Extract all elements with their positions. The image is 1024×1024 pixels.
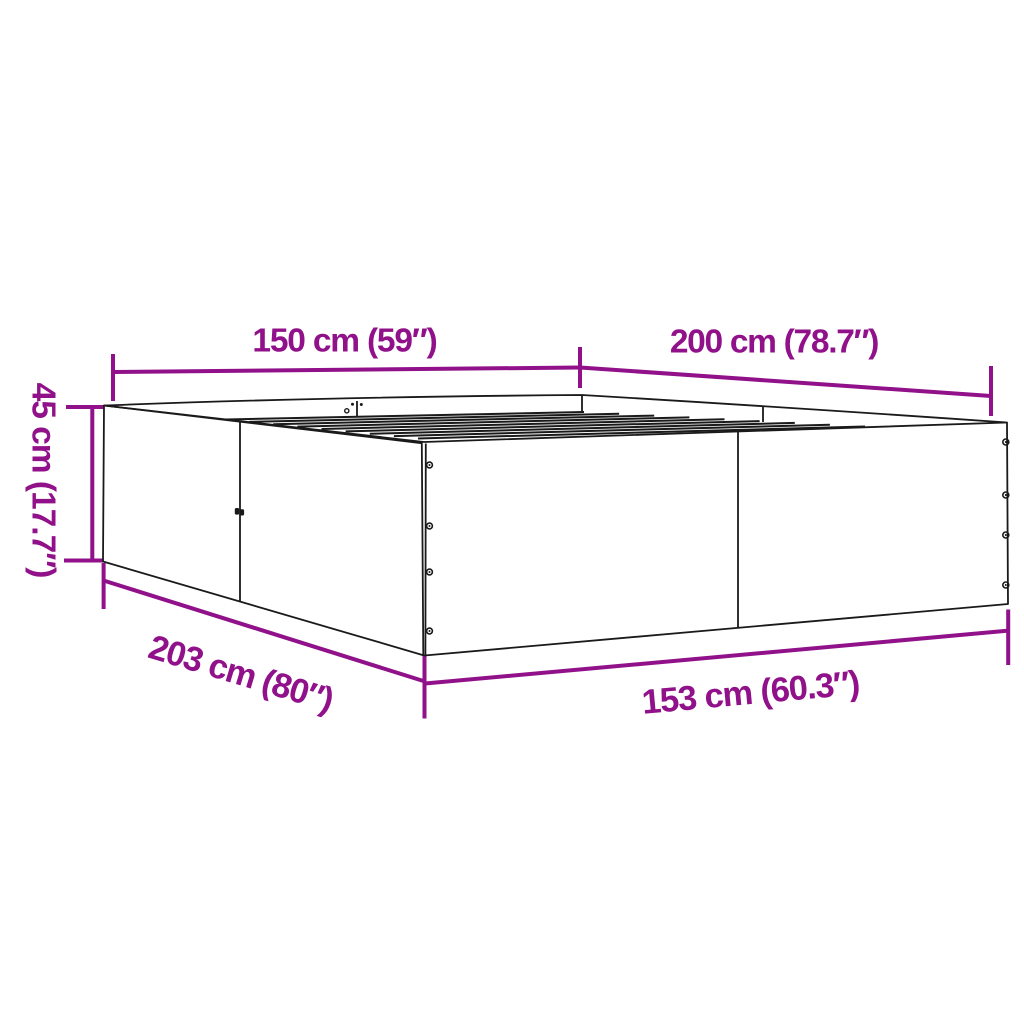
svg-text:150 cm (59″): 150 cm (59″) [252, 323, 436, 360]
svg-text:45 cm (17.7″): 45 cm (17.7″) [25, 383, 62, 578]
svg-text:200 cm (78.7″): 200 cm (78.7″) [670, 324, 878, 361]
